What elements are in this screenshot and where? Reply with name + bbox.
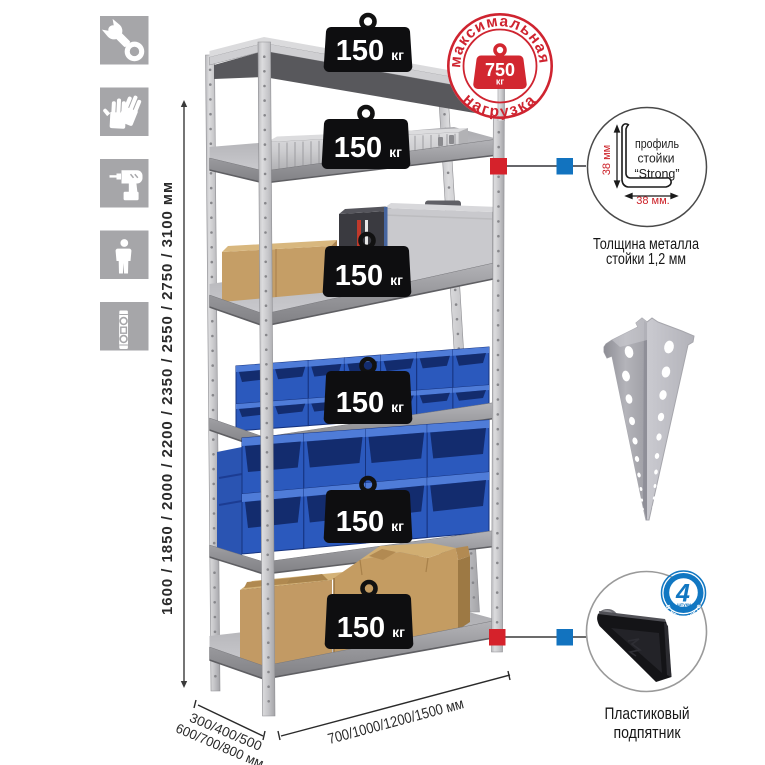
svg-text:стойки: стойки bbox=[638, 151, 675, 166]
svg-text:штуки: штуки bbox=[677, 602, 691, 607]
svg-text:Пластиковый: Пластиковый bbox=[605, 704, 690, 723]
svg-text:кг: кг bbox=[496, 77, 505, 87]
svg-text:150: 150 bbox=[334, 132, 382, 164]
svg-text:кг: кг bbox=[391, 47, 404, 63]
svg-text:кг: кг bbox=[389, 144, 402, 160]
svg-text:подпятник: подпятник bbox=[614, 723, 681, 742]
svg-text:кг: кг bbox=[391, 518, 404, 534]
svg-text:кг: кг bbox=[391, 399, 404, 415]
svg-text:кг: кг bbox=[390, 272, 403, 288]
svg-text:38 мм.: 38 мм. bbox=[636, 195, 669, 207]
svg-text:150: 150 bbox=[336, 35, 384, 67]
svg-text:150: 150 bbox=[335, 260, 383, 292]
svg-text:“Strong”: “Strong” bbox=[635, 166, 680, 181]
svg-text:кг: кг bbox=[392, 624, 405, 640]
svg-text:38 мм: 38 мм bbox=[601, 145, 613, 175]
svg-text:150: 150 bbox=[336, 506, 384, 538]
svg-text:стойки 1,2 мм: стойки 1,2 мм bbox=[606, 251, 686, 268]
svg-text:150: 150 bbox=[337, 612, 385, 644]
svg-text:1600 / 1850 / 2000 / 2200 / 23: 1600 / 1850 / 2000 / 2200 / 2350 / 2550 … bbox=[159, 181, 176, 615]
svg-text:профиль: профиль bbox=[635, 136, 679, 151]
svg-text:150: 150 bbox=[336, 387, 384, 419]
